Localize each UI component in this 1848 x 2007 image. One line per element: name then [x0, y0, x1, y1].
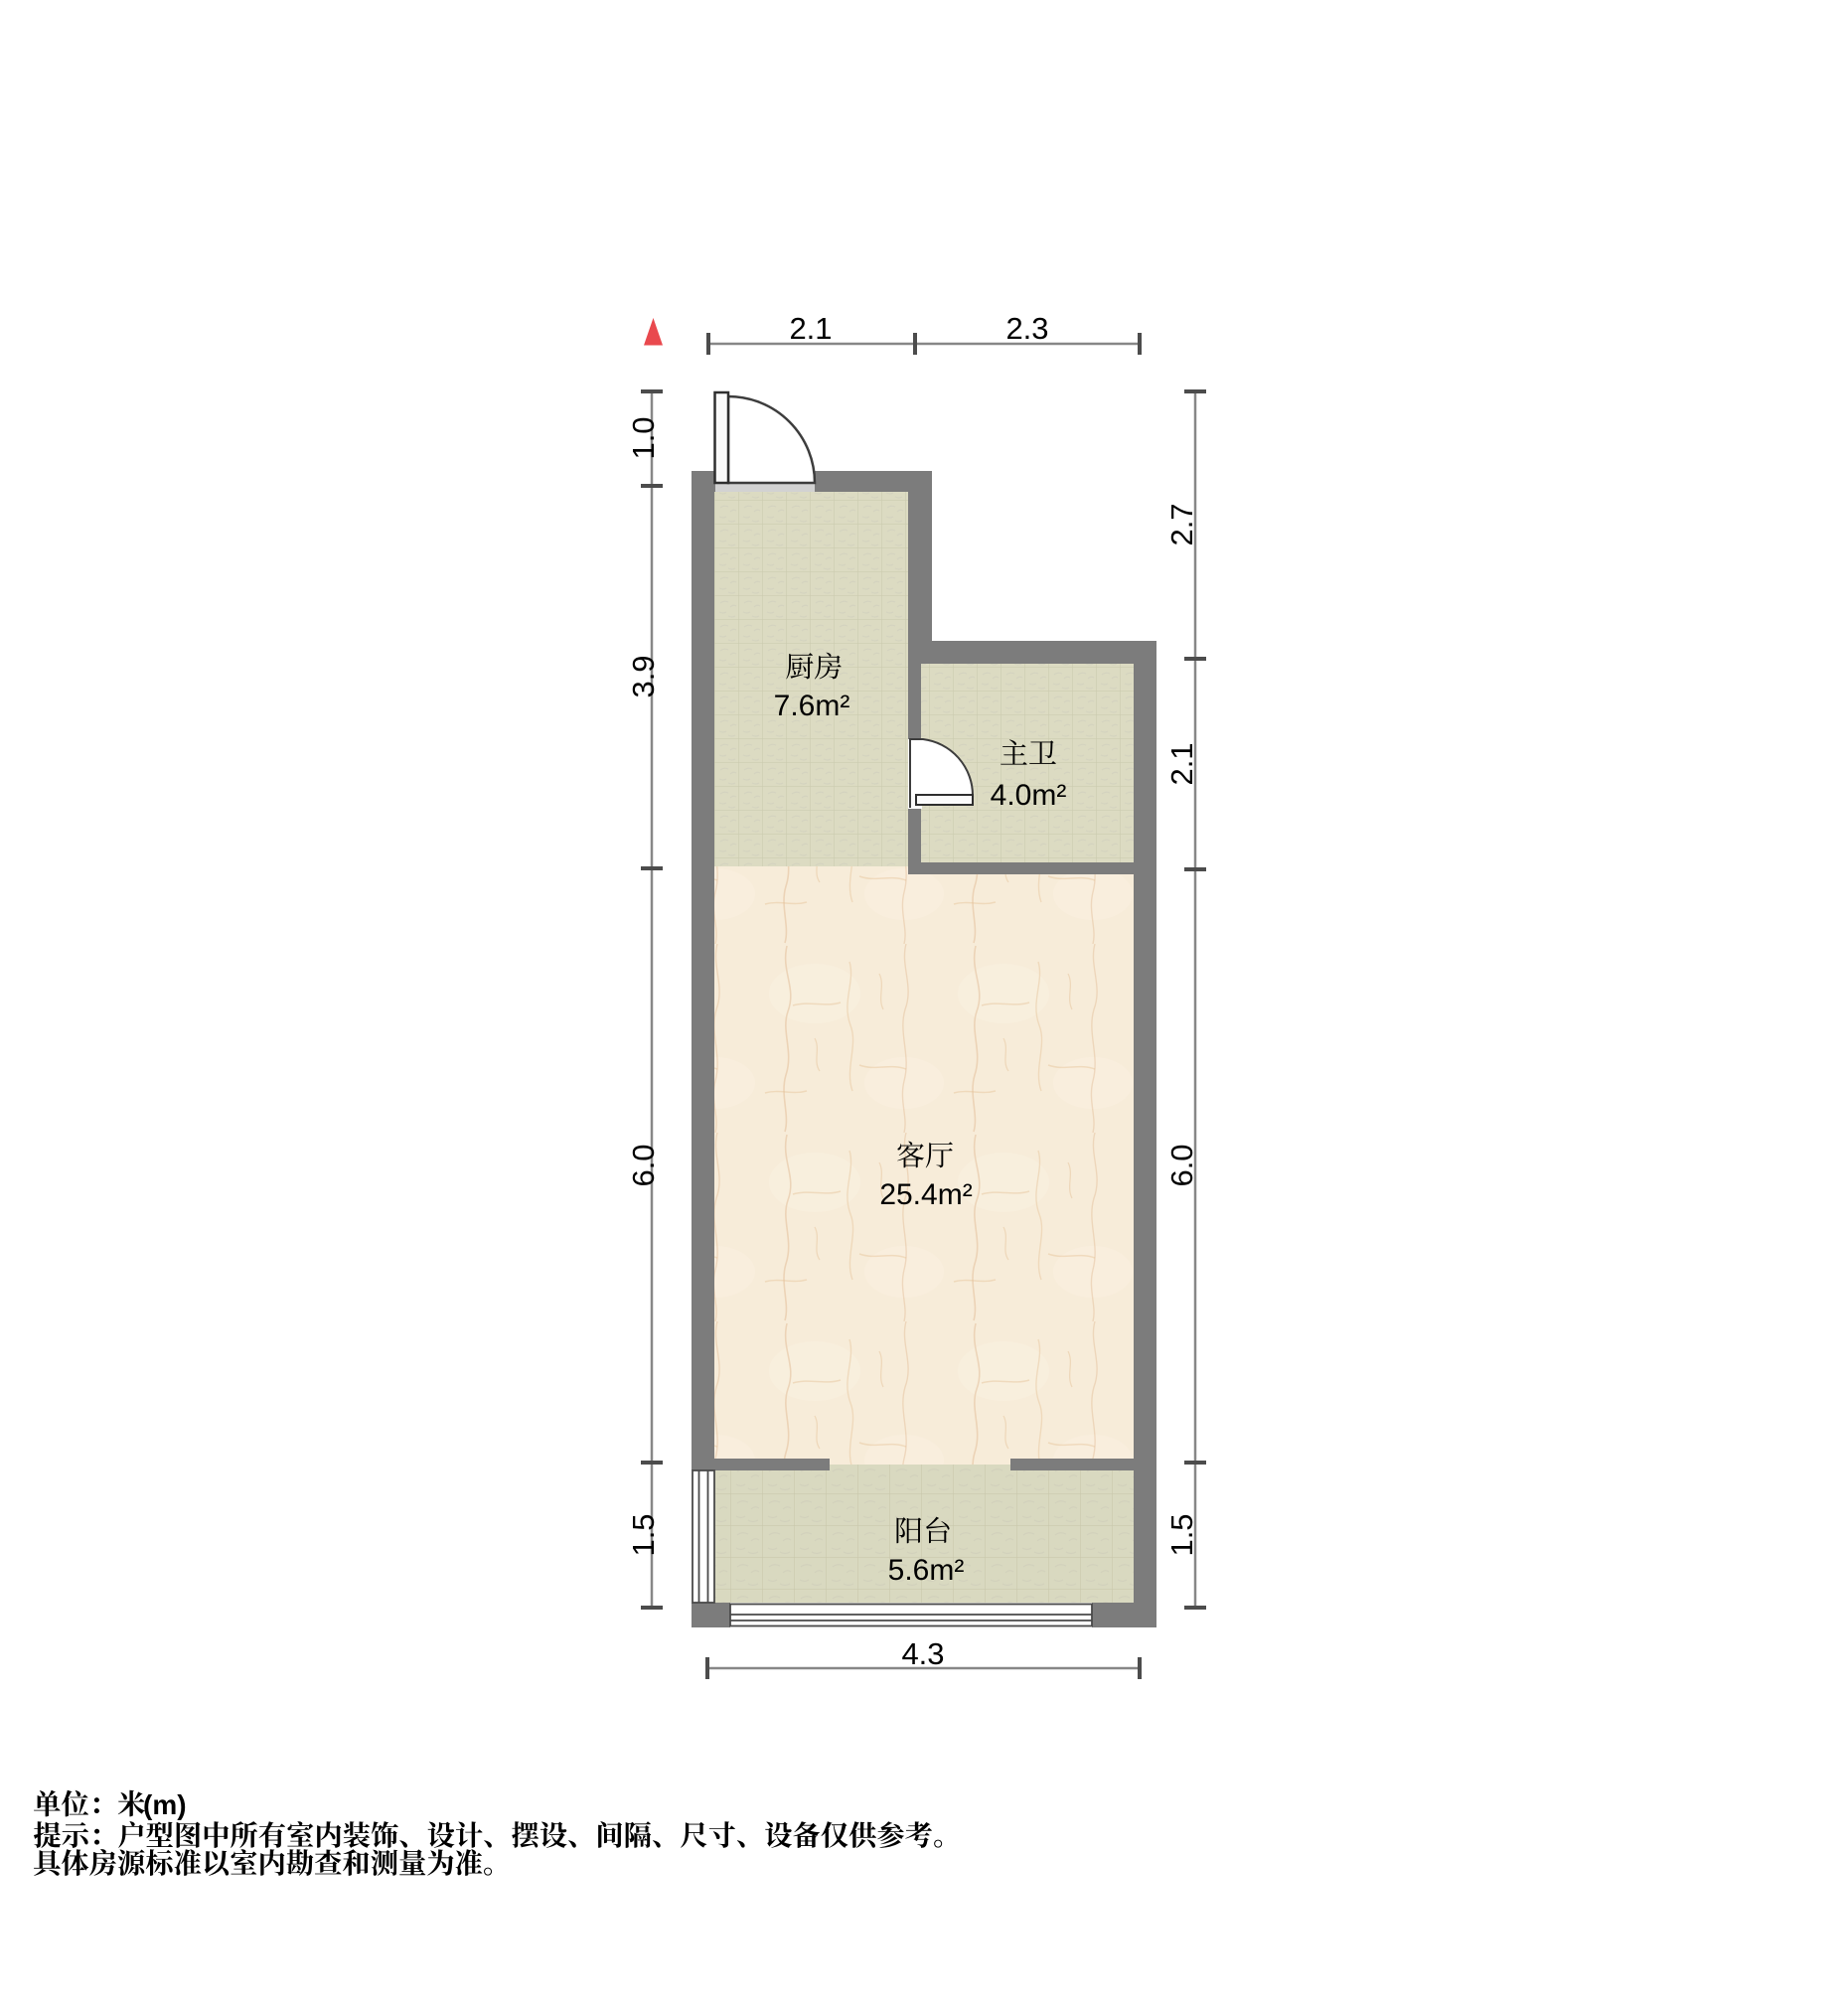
svg-text:7.6m²: 7.6m²: [774, 690, 850, 722]
svg-text:1.5: 1.5: [1164, 1513, 1199, 1556]
svg-text:(m): (m): [143, 1789, 187, 1820]
svg-text:2.1: 2.1: [789, 311, 832, 346]
svg-text:6.0: 6.0: [1164, 1144, 1199, 1186]
svg-text:4.0m²: 4.0m²: [991, 779, 1067, 812]
svg-text:2.7: 2.7: [1164, 503, 1199, 545]
svg-text:2.3: 2.3: [1005, 311, 1048, 346]
svg-text:3.9: 3.9: [626, 655, 661, 697]
svg-text:6.0: 6.0: [626, 1144, 661, 1186]
svg-text:2.1: 2.1: [1164, 742, 1199, 785]
svg-text:5.6m²: 5.6m²: [888, 1554, 965, 1587]
svg-text:1.5: 1.5: [626, 1513, 661, 1556]
svg-text:4.3: 4.3: [901, 1636, 944, 1671]
svg-text:25.4m²: 25.4m²: [879, 1178, 972, 1211]
svg-text:1.0: 1.0: [626, 416, 661, 459]
